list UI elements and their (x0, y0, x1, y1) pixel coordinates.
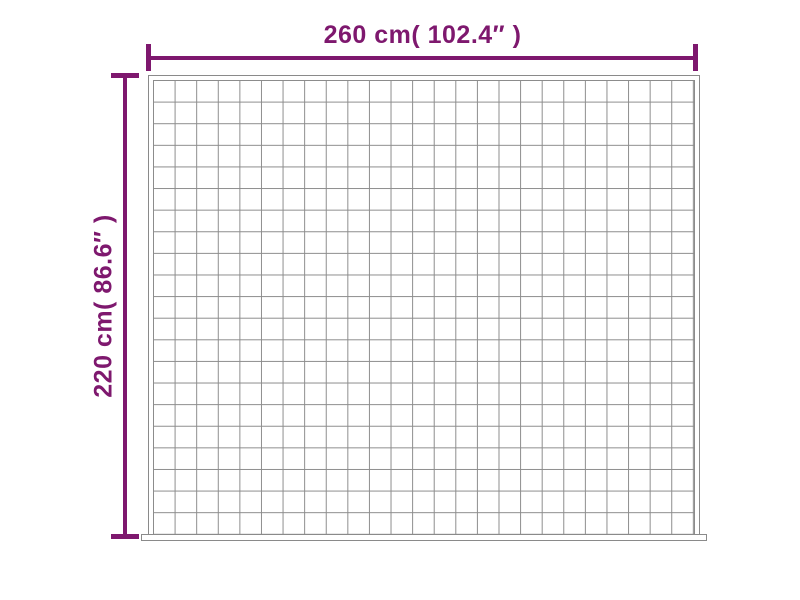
height-dimension-label: 220 cm( 86.6″ ) (90, 214, 119, 397)
height-dimension-cap-top (111, 73, 139, 78)
width-dimension-cap-left (146, 44, 151, 71)
bottom-hem (141, 534, 707, 541)
product-dimension-diagram: 260 cm( 102.4″ ) 220 cm( 86.6″ ) (0, 0, 800, 600)
height-dimension-line (123, 75, 127, 538)
height-dimension-cap-bottom (111, 534, 139, 539)
width-dimension-cap-right (693, 44, 698, 71)
blanket-outline (148, 75, 700, 541)
quilt-grid (153, 80, 695, 536)
width-dimension-line (148, 56, 697, 60)
width-dimension-label: 260 cm( 102.4″ ) (148, 21, 697, 50)
